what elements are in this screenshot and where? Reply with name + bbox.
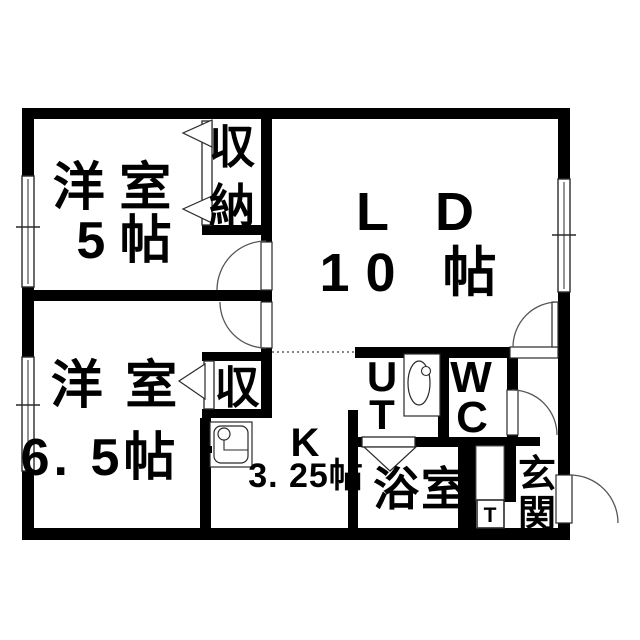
label-ld: L D — [356, 182, 490, 242]
wall-segment — [22, 528, 570, 540]
bath-door-panel — [362, 437, 415, 447]
wall-segment — [558, 523, 570, 540]
label-west-room5: 洋 室 — [53, 159, 171, 217]
label-bathroom: 浴室 — [373, 463, 469, 515]
wall-segment — [261, 290, 272, 302]
door-wc-leaf — [507, 390, 518, 435]
label-wc: C — [456, 393, 488, 442]
label-shuno: 収 — [209, 121, 255, 173]
wall-segment — [415, 437, 458, 447]
wall-segment — [34, 290, 272, 301]
label-entrance: 玄 — [518, 454, 556, 496]
label-ut: T — [369, 391, 395, 438]
label-shu: 収 — [214, 362, 259, 413]
door-ld-hall-leaf — [510, 347, 558, 358]
label-entrance: 関 — [518, 494, 556, 536]
wall-segment — [22, 108, 570, 119]
door-west-room65-leaf — [261, 302, 272, 348]
floorplan-drawing: 洋 室5 帖L D10 帖洋 室6. 5帖K3. 25帖収納収UTWC浴室玄関T — [0, 0, 640, 640]
label-west-room65: 6. 5帖 — [21, 429, 180, 487]
wall-segment — [200, 418, 211, 528]
label-ld: 10 帖 — [319, 243, 512, 303]
door-west-room5-leaf — [261, 242, 272, 290]
wall-segment — [261, 119, 272, 242]
door-entrance-leaf — [556, 475, 572, 523]
kitchen-wall-tick — [205, 446, 212, 453]
label-west-room65: 洋 室 — [51, 357, 181, 415]
pipe-space-box — [476, 446, 504, 501]
label-shuno: 納 — [209, 180, 255, 232]
washbasin-faucet-icon — [422, 367, 431, 376]
label-west-room5: 5 帖 — [76, 212, 171, 270]
kitchen-faucet-icon — [218, 428, 230, 440]
plan-background — [0, 0, 640, 640]
wall-segment — [504, 446, 516, 502]
wall-segment — [558, 292, 570, 475]
wall-segment — [507, 358, 518, 390]
label-kitchen-size: 3. 25帖 — [248, 457, 364, 495]
label-meter-box: T — [484, 504, 497, 527]
door-ld-hall-open-leaf — [552, 302, 558, 347]
wall-segment — [261, 352, 272, 418]
wall-segment — [22, 108, 34, 176]
wall-segment — [558, 108, 570, 179]
wall-segment — [22, 287, 34, 357]
floorplan-page: 洋 室5 帖L D10 帖洋 室6. 5帖K3. 25帖収納収UTWC浴室玄関T — [0, 0, 640, 640]
